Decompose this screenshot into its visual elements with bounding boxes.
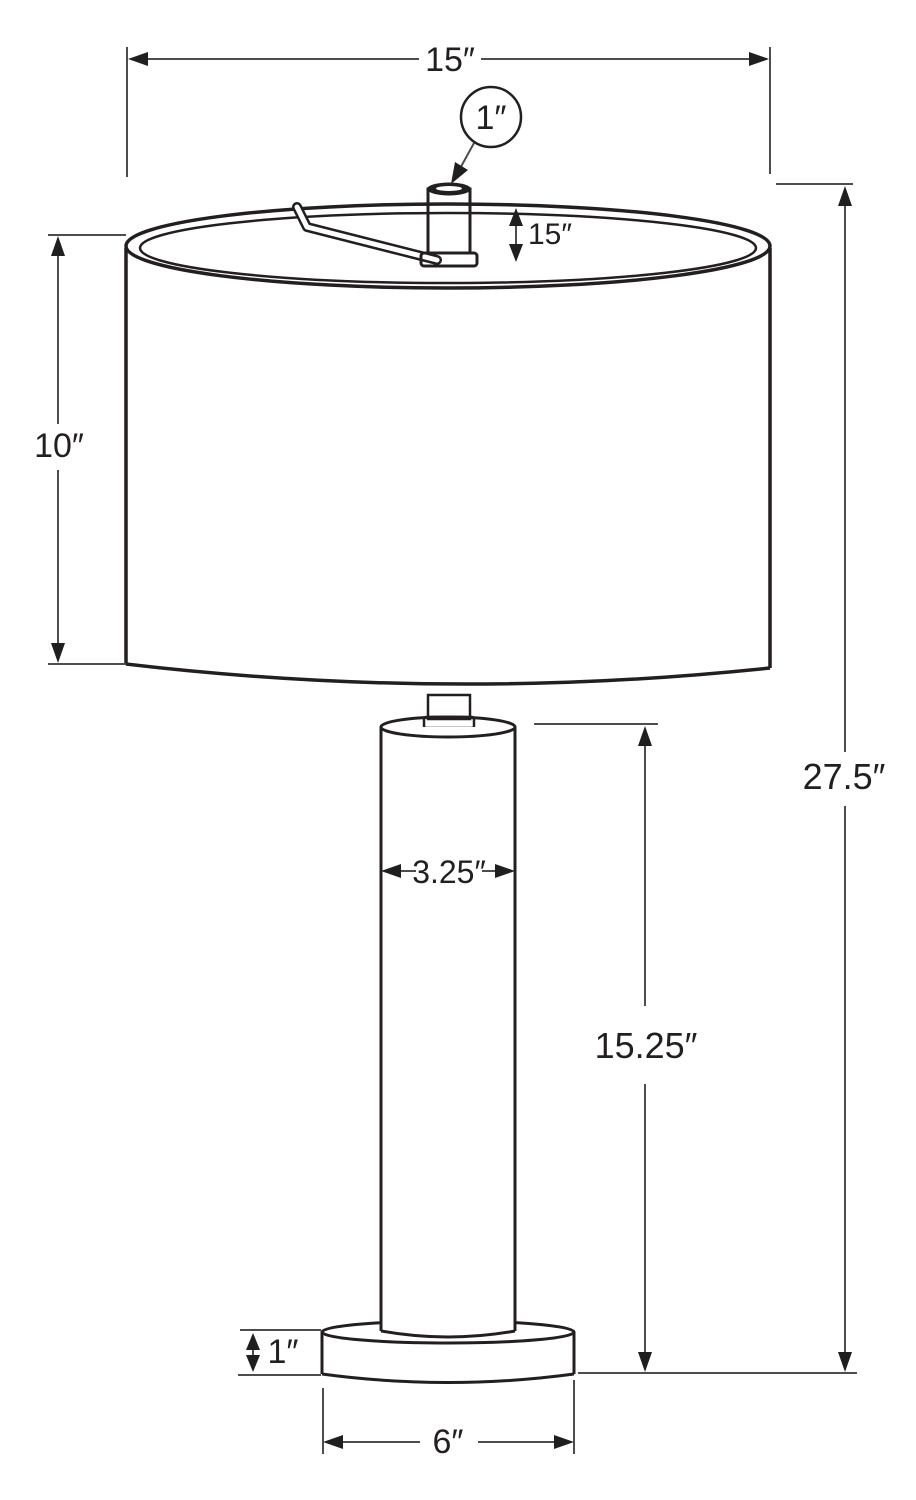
arrowhead-right-icon xyxy=(749,52,769,66)
dim-label: 10″ xyxy=(34,427,84,465)
neck-connector xyxy=(428,695,470,719)
dim-label: 1″ xyxy=(476,99,507,137)
arrowhead-icon xyxy=(451,162,468,184)
finial-top-opening xyxy=(436,186,462,191)
arrowhead-left-icon xyxy=(323,1435,343,1449)
dim-label: 1″ xyxy=(268,1333,299,1371)
arrowhead-up-icon xyxy=(838,186,852,206)
dim-label: 15″ xyxy=(528,218,572,251)
base-bottom-edge xyxy=(322,1374,574,1383)
dim-label: 6″ xyxy=(433,1423,464,1461)
arrowhead-down-icon xyxy=(51,643,65,663)
dim-label: 15.25″ xyxy=(595,1025,698,1066)
dim-total-height: 27.5″ xyxy=(776,184,886,1372)
arrowhead-right-icon xyxy=(554,1435,574,1449)
lamp-artwork xyxy=(126,183,770,1383)
arrowhead-down-icon xyxy=(838,1352,852,1372)
dim-label: 3.25″ xyxy=(412,854,486,890)
arrowhead-down-icon xyxy=(246,1355,260,1372)
dim-shade-diameter: 15″ xyxy=(127,41,770,177)
dim-label: 15″ xyxy=(425,41,475,79)
arrowhead-up-icon xyxy=(509,208,523,226)
pole-face xyxy=(382,727,514,1332)
dim-pole-height: 15.25″ xyxy=(534,724,698,1372)
dim-base-height: 1″ xyxy=(238,1330,321,1375)
finial-tube xyxy=(428,189,470,253)
arrowhead-down-icon xyxy=(509,244,523,262)
dim-finial-diameter: 1″ xyxy=(451,87,521,184)
arrowhead-up-icon xyxy=(246,1333,260,1350)
dim-shade-height: 10″ xyxy=(34,235,126,664)
diagram-canvas: 15″ 1″ 15″ 10″ 27.5″ 3.25″ xyxy=(0,0,916,1500)
shade-outer-rim xyxy=(126,204,770,288)
arrowhead-up-icon xyxy=(51,236,65,256)
arrowhead-down-icon xyxy=(638,1352,652,1372)
dim-base-diameter: 6″ xyxy=(323,1380,574,1461)
arrowhead-up-icon xyxy=(638,726,652,746)
dim-label: 27.5″ xyxy=(803,756,886,797)
lamp-dimension-diagram: 15″ 1″ 15″ 10″ 27.5″ 3.25″ xyxy=(0,0,916,1500)
shade-inner-rim xyxy=(140,213,756,283)
arrowhead-left-icon xyxy=(128,52,148,66)
shade-bottom-edge xyxy=(126,664,770,684)
